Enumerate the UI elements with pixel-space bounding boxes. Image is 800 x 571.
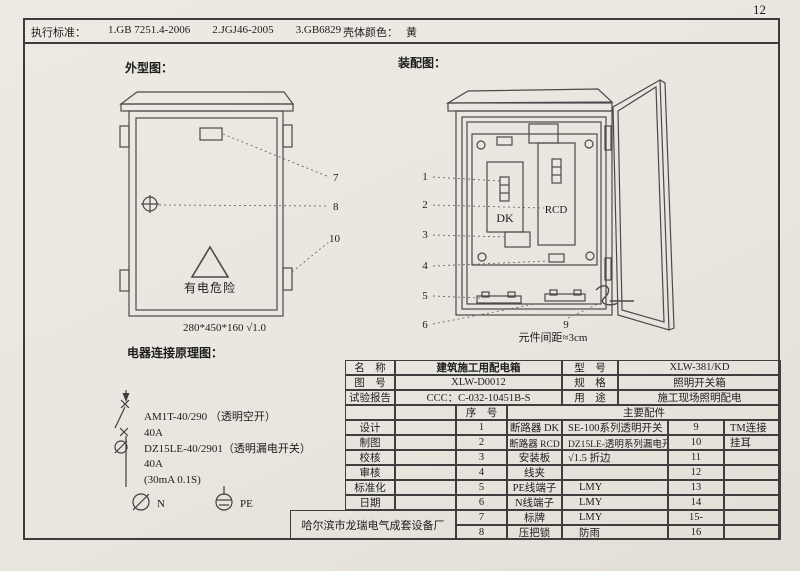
part-desc: LMY (562, 510, 668, 525)
shell-color: 壳体颜色： 黄 (343, 24, 417, 40)
part-no: 8 (456, 525, 507, 540)
part-desc: 防雨 (562, 525, 668, 540)
part-desc2 (724, 450, 781, 465)
page-number: 12 (753, 2, 766, 18)
shell-color-label: 壳体颜色： (343, 24, 398, 40)
sign-value-cell (395, 495, 456, 510)
outline-drawing-title: 外型图： (125, 59, 173, 76)
schematic-note-line: (30mA 0.1S) (144, 473, 311, 489)
part-desc (562, 465, 668, 480)
part-no2: 12 (668, 465, 724, 480)
part-desc2 (724, 510, 781, 525)
sign-value-cell (395, 450, 456, 465)
part-name: 线夹 (507, 465, 562, 480)
part-no2: 11 (668, 450, 724, 465)
part-name: 标牌 (507, 510, 562, 525)
part-no2: 16 (668, 525, 724, 540)
sign-label: 校核 (345, 450, 395, 465)
sign-label: 日期 (345, 495, 395, 510)
info-label: 用 途 (562, 390, 618, 405)
main-parts-header: 主要配件 (507, 405, 781, 420)
part-desc: SE-100系列透明开关 (562, 420, 668, 435)
empty-cell (395, 405, 456, 420)
part-name: 断路器 DK (507, 420, 562, 435)
sign-label: 标准化 (345, 480, 395, 495)
empty-cell (345, 405, 395, 420)
part-no: 2 (456, 435, 507, 450)
seq-header: 序 号 (456, 405, 507, 420)
shell-color-value: 黄 (406, 24, 417, 40)
info-value: 施工现场照明配电 (618, 390, 781, 405)
info-value: XLW-381/KD (618, 360, 781, 375)
part-no2: 15- (668, 510, 724, 525)
standard-3: 3.GB6829 (296, 24, 342, 40)
schematic-note-line: 40A (144, 457, 311, 473)
part-no: 3 (456, 450, 507, 465)
part-no: 7 (456, 510, 507, 525)
part-desc2: TM连接 (724, 420, 781, 435)
schematic-note-line: AM1T-40/290 （透明空开） (144, 410, 311, 426)
standard-1: 1.GB 7251.4-2006 (108, 24, 190, 40)
manufacturer-name: 哈尔滨市龙瑞电气成套设备厂 (290, 510, 456, 540)
sign-label: 设计 (345, 420, 395, 435)
part-desc: DZ15LE-透明系列漏电开 (562, 435, 668, 450)
part-no: 4 (456, 465, 507, 480)
part-name: 安装板 (507, 450, 562, 465)
sign-value-cell (395, 480, 456, 495)
info-label: 型 号 (562, 360, 618, 375)
part-desc2 (724, 480, 781, 495)
schematic-title: 电器连接原理图： (127, 344, 223, 361)
standards-band: 执行标准： 1.GB 7251.4-2006 2.JGJ46-2005 3.GB… (25, 20, 778, 44)
schematic-note-line: DZ15LE-40/2901（透明漏电开关） (144, 442, 311, 458)
part-desc2 (724, 525, 781, 540)
info-label: 试验报告 (345, 390, 395, 405)
part-no: 6 (456, 495, 507, 510)
info-label: 规 格 (562, 375, 618, 390)
part-name: PE线端子 (507, 480, 562, 495)
schematic-notes: AM1T-40/290 （透明空开） 40A DZ15LE-40/2901（透明… (144, 410, 311, 489)
sign-value-cell (395, 465, 456, 480)
part-no2: 13 (668, 480, 724, 495)
part-no2: 14 (668, 495, 724, 510)
standard-2: 2.JGJ46-2005 (212, 24, 273, 40)
exec-standards-label: 执行标准： (31, 24, 86, 40)
part-name: 压把锁 (507, 525, 562, 540)
assembly-drawing-title: 装配图： (398, 54, 446, 71)
info-label: 图 号 (345, 375, 395, 390)
part-no: 5 (456, 480, 507, 495)
sign-value-cell (395, 435, 456, 450)
schematic-note-line: 40A (144, 426, 311, 442)
info-value: 建筑施工用配电箱 (395, 360, 562, 375)
part-desc2: 挂耳 (724, 435, 781, 450)
part-no2: 9 (668, 420, 724, 435)
exec-standards: 执行标准： 1.GB 7251.4-2006 2.JGJ46-2005 3.GB… (31, 24, 341, 40)
drawing-sheet: 12 执行标准： 1.GB 7251.4-2006 2.JGJ46-2005 3… (0, 0, 800, 571)
part-no2: 10 (668, 435, 724, 450)
part-name: 断路器 RCD (507, 435, 562, 450)
part-desc: √1.5 折边 (562, 450, 668, 465)
sign-label: 制图 (345, 435, 395, 450)
part-desc: LMY (562, 480, 668, 495)
part-name: N线端子 (507, 495, 562, 510)
sign-value-cell (395, 420, 456, 435)
part-desc2 (724, 495, 781, 510)
part-no: 1 (456, 420, 507, 435)
part-desc2 (724, 465, 781, 480)
sign-label: 审核 (345, 465, 395, 480)
info-label: 名 称 (345, 360, 395, 375)
info-value: CCC：C-032-10451B-S (395, 390, 562, 405)
info-value: XLW-D0012 (395, 375, 562, 390)
part-desc: LMY (562, 495, 668, 510)
info-value: 照明开关箱 (618, 375, 781, 390)
